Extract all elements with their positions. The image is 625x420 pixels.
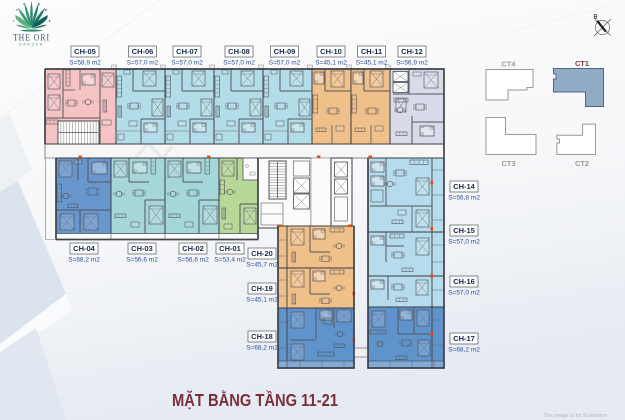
svg-text:CH-14: CH-14 [453, 182, 476, 191]
svg-text:CH-19: CH-19 [251, 284, 273, 293]
svg-text:CH-07: CH-07 [176, 47, 198, 56]
svg-text:CH-16: CH-16 [453, 277, 475, 286]
svg-text:S=57,0 m2: S=57,0 m2 [171, 59, 203, 66]
svg-text:CH-06: CH-06 [132, 47, 154, 56]
svg-text:S=68,2 m2: S=68,2 m2 [448, 346, 480, 353]
svg-text:S=58,9 m2: S=58,9 m2 [69, 59, 101, 66]
svg-text:CH-11: CH-11 [361, 47, 382, 56]
svg-text:CH-17: CH-17 [453, 334, 475, 343]
svg-text:CT1: CT1 [575, 59, 589, 68]
svg-text:CH-20: CH-20 [251, 249, 273, 258]
svg-text:CH-03: CH-03 [131, 244, 153, 253]
svg-text:S=68,2 m2: S=68,2 m2 [68, 256, 100, 263]
svg-text:S=56,8 m2: S=56,8 m2 [448, 194, 480, 201]
svg-text:S=53,4 m2: S=53,4 m2 [214, 256, 246, 263]
svg-text:CH-09: CH-09 [274, 47, 296, 56]
svg-text:CH-05: CH-05 [74, 47, 96, 56]
svg-text:S=45,1 m2: S=45,1 m2 [315, 59, 347, 66]
svg-text:S=57,0 m2: S=57,0 m2 [127, 59, 159, 66]
svg-text:CH-18: CH-18 [251, 332, 273, 341]
svg-text:S=56,6 m2: S=56,6 m2 [126, 256, 158, 263]
svg-text:GARDEN: GARDEN [19, 42, 44, 47]
svg-text:CH-08: CH-08 [228, 47, 250, 56]
svg-text:MẶT BẰNG TẦNG 11-21: MẶT BẰNG TẦNG 11-21 [172, 389, 338, 410]
svg-text:S=57,0 m2: S=57,0 m2 [223, 59, 255, 66]
svg-text:CH-02: CH-02 [182, 244, 204, 253]
svg-text:This image is for illustration: This image is for illustration [543, 413, 607, 419]
svg-text:CH-15: CH-15 [453, 226, 475, 235]
svg-text:S=45,1 m2: S=45,1 m2 [356, 59, 388, 66]
svg-text:S=56,6 m2: S=56,6 m2 [177, 256, 209, 263]
svg-text:CH-12: CH-12 [401, 47, 423, 56]
svg-text:CH-04: CH-04 [73, 244, 96, 253]
svg-text:S=57,0 m2: S=57,0 m2 [448, 238, 480, 245]
svg-text:S=56,9 m2: S=56,9 m2 [396, 59, 428, 66]
svg-text:CT3: CT3 [502, 159, 516, 168]
svg-text:CH-10: CH-10 [320, 47, 342, 56]
svg-text:S=45,1 m2: S=45,1 m2 [246, 296, 278, 303]
svg-text:CT4: CT4 [502, 60, 517, 69]
svg-text:CH-01: CH-01 [219, 244, 241, 253]
svg-text:CT2: CT2 [575, 159, 589, 168]
svg-text:S=68,2 m2: S=68,2 m2 [246, 344, 278, 351]
svg-text:S=57,0 m2: S=57,0 m2 [269, 59, 301, 66]
svg-text:S=57,0 m2: S=57,0 m2 [448, 289, 480, 296]
svg-text:S=45,7 m2: S=45,7 m2 [246, 261, 278, 268]
